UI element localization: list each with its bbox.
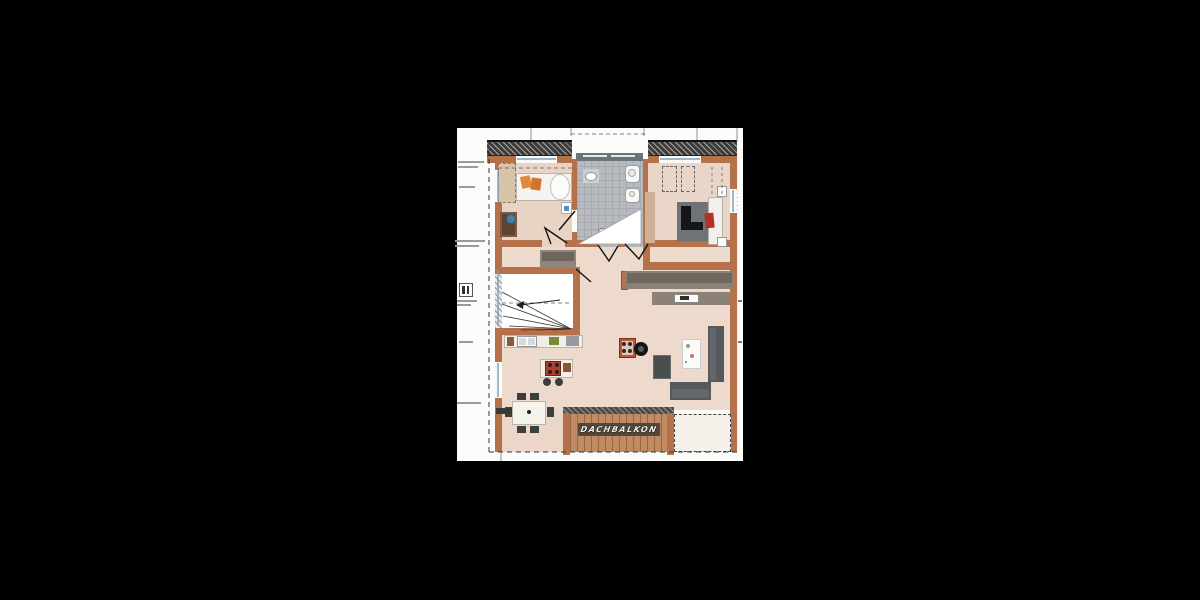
floor-plan-stage: DACHBALKON [0, 0, 1200, 600]
stair-walkline [520, 300, 560, 305]
door-swing-bedroom2 [625, 244, 648, 259]
plan-linework [0, 0, 1200, 600]
stair-tread [502, 304, 571, 329]
door-swing-bedroom [545, 228, 567, 244]
stair-tread [502, 292, 571, 329]
door-swing-bath-bedroom [559, 211, 575, 230]
corner-shower [578, 209, 641, 244]
door-swing-stair [576, 269, 591, 282]
balcony-label: DACHBALKON [578, 423, 660, 436]
stair-walkline-arrow [516, 301, 524, 309]
door-swing-bathroom [598, 245, 618, 261]
